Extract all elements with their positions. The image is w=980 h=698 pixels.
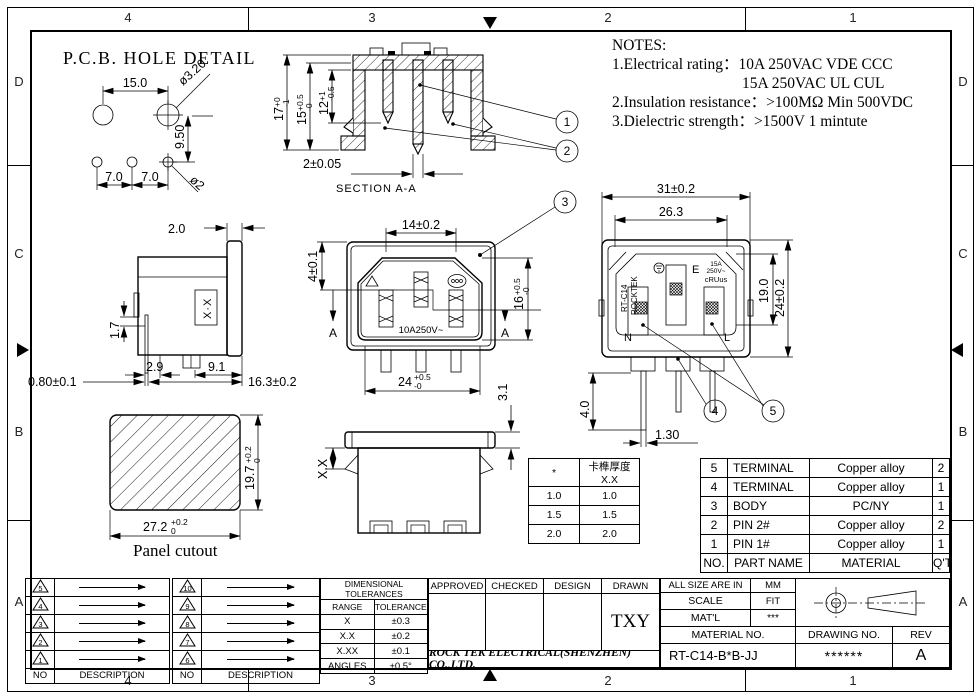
- rev-triangle-cell: 8: [173, 615, 202, 633]
- tolerance-table: DIMENSIONAL TOLERANCES RANGE TOLERANCE X…: [320, 578, 428, 674]
- zone-right-C: C: [954, 246, 972, 261]
- rev-desc-cell: [202, 579, 320, 597]
- thickness-cell: 1.0: [529, 487, 580, 506]
- tick-left-1: [7, 165, 30, 166]
- dim-dia-3-20: ø3.20: [176, 56, 209, 88]
- dim-2-9: 2.9: [146, 360, 163, 374]
- dim-vspace-9-50: 9.50: [173, 125, 187, 149]
- dim-12: 12 +1 -0.5: [317, 86, 336, 115]
- panel-cutout-label: Panel cutout: [133, 541, 218, 561]
- bottom-geometry: [325, 405, 520, 533]
- front-rating: 10A250V~: [399, 325, 444, 336]
- dim-x-x: X.X: [316, 458, 330, 479]
- center-arrow-right: [951, 343, 963, 357]
- dim-0-80: 0.80±0.1: [28, 375, 77, 389]
- zone-top-1: 1: [844, 10, 862, 25]
- rear-rating-volts: 250V~: [707, 268, 726, 275]
- company-name: ROCK TEK ELECTRICAL(SHENZHEN) CO.,LTD.: [428, 650, 660, 668]
- rev-desc-cell: [202, 597, 320, 615]
- bom-qty: 1: [933, 535, 950, 554]
- dim-pitch-7a: 7.0: [105, 170, 122, 184]
- svg-text:19.7: 19.7: [243, 466, 257, 490]
- part-number: RT-C14-B*B-JJ: [660, 643, 796, 668]
- zone-right-B: B: [954, 424, 972, 439]
- size-unit-label: ALL SIZE ARE IN: [660, 578, 751, 593]
- zone-left-B: B: [10, 424, 28, 439]
- rev-triangle-no: 8: [185, 620, 189, 629]
- svg-defs: [0, 0, 1, 1]
- design-signature: [543, 593, 602, 651]
- scale-label: SCALE: [660, 592, 751, 610]
- bom-no: 1: [701, 535, 728, 554]
- dim-24-02: 24±0.2: [773, 279, 787, 317]
- thickness-table: * 卡榫厚度 X.X 1.0 1.0 1.5 1.5 2.0 2.0: [528, 458, 640, 544]
- bom-header-material: MATERIAL: [810, 554, 933, 573]
- notes-title: NOTES:: [612, 36, 960, 55]
- section-arrow-label-right: A: [501, 326, 509, 340]
- table-row: 3 BODY PC/NY 1: [701, 497, 950, 516]
- svg-text:-0: -0: [304, 103, 314, 111]
- tolerance-value: ±0.1: [374, 644, 428, 659]
- thickness-cell: 1.0: [580, 487, 640, 506]
- material-value: ***: [750, 609, 796, 627]
- dim-14: 14±0.2: [402, 218, 440, 232]
- projection-symbol-cell: [795, 578, 950, 627]
- bom-material: Copper alloy: [810, 516, 933, 535]
- tick-left-2: [7, 520, 30, 521]
- rear-rating-amps: 15A: [710, 261, 722, 268]
- tolerance-header-range: RANGE: [321, 600, 375, 615]
- rear-geometry: [588, 192, 793, 447]
- bom-material: Copper alloy: [810, 478, 933, 497]
- checked-signature: [485, 593, 544, 651]
- rev-dash: [227, 587, 295, 588]
- rev-triangle-no: 4: [38, 602, 42, 611]
- svg-text:-0.5: -0.5: [326, 86, 336, 101]
- approved-header: APPROVED: [428, 578, 486, 594]
- balloon-3: 3: [562, 195, 569, 209]
- rev-desc-cell: [202, 633, 320, 651]
- table-row: 4 TERMINAL Copper alloy 1: [701, 478, 950, 497]
- rev-triangle-no: 10: [183, 584, 191, 593]
- view-side: 2.0 X·X 1.7 2.9 9.1 0.80±0.1 16.3±0.2: [20, 205, 330, 405]
- svg-text:0: 0: [252, 458, 262, 463]
- bom-header-row: NO. PART NAME MATERIAL Q'TY: [701, 554, 950, 573]
- dim-pitch-7b: 7.0: [141, 170, 158, 184]
- material-no-label: MATERIAL NO.: [660, 626, 796, 644]
- bom-part-name: TERMINAL: [728, 459, 810, 478]
- table-row: 5 TERMINAL Copper alloy 2: [701, 459, 950, 478]
- zone-top-2: 2: [599, 10, 617, 25]
- dim-pitch-15: 15.0: [123, 76, 147, 90]
- drawing-sheet: 4 3 2 1 4 3 2 1 D C B A D C B A P.C.B. H…: [0, 0, 980, 698]
- bom-part-name: PIN 1#: [728, 535, 810, 554]
- bom-qty: 2: [933, 516, 950, 535]
- zone-bottom-1: 1: [844, 673, 862, 688]
- rev-dash: [79, 659, 145, 660]
- rev-triangle-cell: 5: [26, 579, 55, 597]
- dim-3-1: 3.1: [496, 384, 510, 401]
- svg-text:-1: -1: [281, 99, 291, 107]
- rev-footer-no: NO: [26, 669, 55, 684]
- bom-no: 4: [701, 478, 728, 497]
- tick-bottom-2: [745, 668, 746, 691]
- bom-qty: 1: [933, 478, 950, 497]
- balloon-5: 5: [770, 404, 777, 418]
- thickness-cell: 1.5: [529, 506, 580, 525]
- rev-triangle-cell: 10: [173, 579, 202, 597]
- dim-4: 4±0.1: [306, 251, 320, 282]
- bom-table: 5 TERMINAL Copper alloy 2 4 TERMINAL Cop…: [700, 458, 950, 573]
- rev-triangle-cell: 9: [173, 597, 202, 615]
- zone-bottom-2: 2: [599, 673, 617, 688]
- tick-right-2: [950, 520, 973, 521]
- rev-triangle-no: 7: [185, 638, 189, 647]
- zone-top-3: 3: [363, 10, 381, 25]
- dim-27-2: 27.2 +0.2 0: [143, 517, 188, 536]
- notes-line-1: 1.Electrical rating：10A 250VAC VDE CCC: [612, 55, 960, 74]
- rev-triangle-cell: 3: [26, 615, 55, 633]
- thickness-cell: 2.0: [529, 525, 580, 544]
- rev-triangle-cell: 2: [26, 633, 55, 651]
- tolerance-title: DIMENSIONAL TOLERANCES: [321, 579, 428, 600]
- bom-qty: 1: [933, 497, 950, 516]
- rev-desc-cell: [55, 579, 170, 597]
- material-label: MAT'L: [660, 609, 751, 627]
- tolerance-range: ANGLES: [321, 659, 375, 674]
- zone-top-4: 4: [119, 10, 137, 25]
- rev-desc-cell: [202, 651, 320, 669]
- rev-dash: [79, 623, 145, 624]
- rev-value: A: [892, 643, 950, 668]
- approval-block: APPROVED CHECKED DESIGN DRAWN TXY ROCK T…: [428, 578, 660, 668]
- rev-dash: [79, 605, 145, 606]
- checked-header: CHECKED: [485, 578, 544, 594]
- third-angle-projection-icon: [796, 579, 949, 626]
- center-arrow-bottom: [483, 669, 497, 681]
- rev-dash: [227, 659, 295, 660]
- revision-table-2: 10 9 8 7 6 NO DESCRIPTION: [172, 578, 320, 684]
- dim-19: 19.0: [757, 279, 771, 303]
- drawn-header: DRAWN: [601, 578, 660, 594]
- dim-15: 15 +0.5 -0: [295, 94, 314, 125]
- bom-qty: 2: [933, 459, 950, 478]
- bom-no: 5: [701, 459, 728, 478]
- tolerance-value: ±0.5°: [374, 659, 428, 674]
- zone-bottom-3: 3: [363, 673, 381, 688]
- table-row: 2 PIN 2# Copper alloy 2: [701, 516, 950, 535]
- thickness-header-star: *: [529, 459, 580, 487]
- bom-part-name: BODY: [728, 497, 810, 516]
- zone-left-D: D: [10, 74, 28, 89]
- rev-desc-cell: [55, 633, 170, 651]
- tick-right-1: [950, 165, 973, 166]
- notes-block: NOTES: 1.Electrical rating：10A 250VAC VD…: [612, 36, 960, 131]
- rev-footer-desc: DESCRIPTION: [202, 669, 320, 684]
- dim-1-30: 1.30: [655, 428, 679, 442]
- bom-material: PC/NY: [810, 497, 933, 516]
- title-info-block: ALL SIZE ARE IN MM SCALE FIT MAT'L *** M…: [660, 578, 950, 668]
- rear-brand-name: ROCKTEK: [630, 276, 639, 315]
- side-xx-label: X·X: [202, 298, 214, 319]
- approved-signature: [428, 593, 486, 651]
- svg-text:-0: -0: [521, 287, 531, 295]
- drawing-no-label: DRAWING NO.: [795, 626, 893, 644]
- rev-triangle-no: 2: [38, 638, 42, 647]
- tick-top-2: [745, 7, 746, 30]
- rev-label: REV: [892, 626, 950, 644]
- dim-26-3: 26.3: [659, 205, 683, 219]
- rev-triangle-no: 5: [38, 584, 42, 593]
- rev-desc-cell: [55, 597, 170, 615]
- bom-header-no: NO.: [701, 554, 728, 573]
- front-geometry: [317, 191, 576, 395]
- dim-31: 31±0.2: [657, 182, 695, 196]
- rev-dash: [79, 641, 145, 642]
- rear-brand-model: RT-C14: [620, 284, 629, 312]
- drawing-no-value: ******: [795, 643, 893, 668]
- thickness-cell: 2.0: [580, 525, 640, 544]
- rev-desc-cell: [55, 651, 170, 669]
- rev-dash: [227, 623, 295, 624]
- svg-text:17: 17: [272, 107, 286, 121]
- rear-pin-e: E: [692, 264, 699, 276]
- section-arrow-label-left: A: [329, 326, 337, 340]
- rear-pin-n: N: [624, 332, 632, 344]
- dim-2-005: 2±0.05: [303, 157, 341, 171]
- svg-text:27.2: 27.2: [143, 520, 167, 534]
- tolerance-range: X.X: [321, 629, 375, 644]
- rev-footer-no: NO: [173, 669, 202, 684]
- drawn-signature: TXY: [601, 593, 660, 651]
- rev-desc-cell: [55, 615, 170, 633]
- tolerance-value: ±0.3: [374, 614, 428, 629]
- balloon-2: 2: [564, 144, 571, 158]
- zone-right-A: A: [954, 594, 972, 609]
- bom-header-qty: Q'TY: [933, 554, 950, 573]
- rev-triangle-cell: 6: [173, 651, 202, 669]
- dim-1-7: 1.7: [108, 322, 122, 339]
- tolerance-header-tol: TOLERANCE: [374, 600, 428, 615]
- dim-9-1: 9.1: [208, 360, 225, 374]
- dim-19-7: 19.7 +0.2 0: [243, 446, 262, 490]
- tolerance-range: X: [321, 614, 375, 629]
- dim-16-3: 16.3±0.2: [248, 375, 297, 389]
- bom-part-name: TERMINAL: [728, 478, 810, 497]
- rev-dash: [227, 641, 295, 642]
- svg-text:16: 16: [512, 296, 526, 310]
- rev-triangle-no: 6: [185, 656, 189, 665]
- tolerance-value: ±0.2: [374, 629, 428, 644]
- table-row: 1 PIN 1# Copper alloy 1: [701, 535, 950, 554]
- rev-triangle-no: 1: [38, 656, 42, 665]
- balloon-1: 1: [564, 115, 571, 129]
- rev-dash: [79, 587, 145, 588]
- svg-text:0: 0: [171, 526, 176, 536]
- bom-part-name: PIN 2#: [728, 516, 810, 535]
- balloon-4: 4: [712, 404, 719, 418]
- rev-desc-cell: [202, 615, 320, 633]
- rev-triangle-cell: 7: [173, 633, 202, 651]
- tick-top-1: [248, 7, 249, 30]
- bom-header-name: PART NAME: [728, 554, 810, 573]
- dim-17: 17 +0 -1: [272, 97, 291, 121]
- rev-triangle-cell: 1: [26, 651, 55, 669]
- rev-triangle-no: 9: [185, 602, 189, 611]
- rev-triangle-cell: 4: [26, 597, 55, 615]
- bom-material: Copper alloy: [810, 535, 933, 554]
- revision-table-1: 5 4 3 2 1 NO DESCRIPTION: [25, 578, 170, 684]
- notes-line-3: 2.Insulation resistance：>100MΩ Min 500VD…: [612, 93, 960, 112]
- view-rear: 31±0.2 26.3 19.0 24±0.2 4.0 1.30 RT-C14 …: [578, 175, 950, 465]
- svg-text:12: 12: [317, 101, 331, 115]
- view-section-aa: 17 +0 -1 15 +0.5 -0 12 +1 -0.5 2±0.05 SE…: [248, 28, 618, 198]
- scale-value: FIT: [750, 592, 796, 610]
- notes-line-4: 3.Dielectric strength：>1500V 1 mintute: [612, 112, 960, 131]
- side-geometry: [83, 223, 265, 386]
- rev-footer-desc: DESCRIPTION: [55, 669, 170, 684]
- rear-pin-l: L: [724, 332, 730, 344]
- rev-dash: [227, 605, 295, 606]
- rev-triangle-no: 3: [38, 620, 42, 629]
- notes-line-2: 15A 250VAC UL CUL: [612, 74, 960, 93]
- svg-text:15: 15: [295, 111, 309, 125]
- dim-2-0: 2.0: [168, 222, 185, 236]
- tolerance-range: X.XX: [321, 644, 375, 659]
- design-header: DESIGN: [543, 578, 602, 594]
- thickness-header-label: 卡榫厚度 X.X: [580, 459, 640, 487]
- dim-4-0: 4.0: [578, 401, 592, 418]
- bom-material: Copper alloy: [810, 459, 933, 478]
- rear-cert-mark: cRUus: [705, 275, 728, 284]
- bom-no: 3: [701, 497, 728, 516]
- dim-dia-2: ø2: [187, 173, 207, 193]
- size-unit-value: MM: [750, 578, 796, 593]
- thickness-cell: 1.5: [580, 506, 640, 525]
- bom-no: 2: [701, 516, 728, 535]
